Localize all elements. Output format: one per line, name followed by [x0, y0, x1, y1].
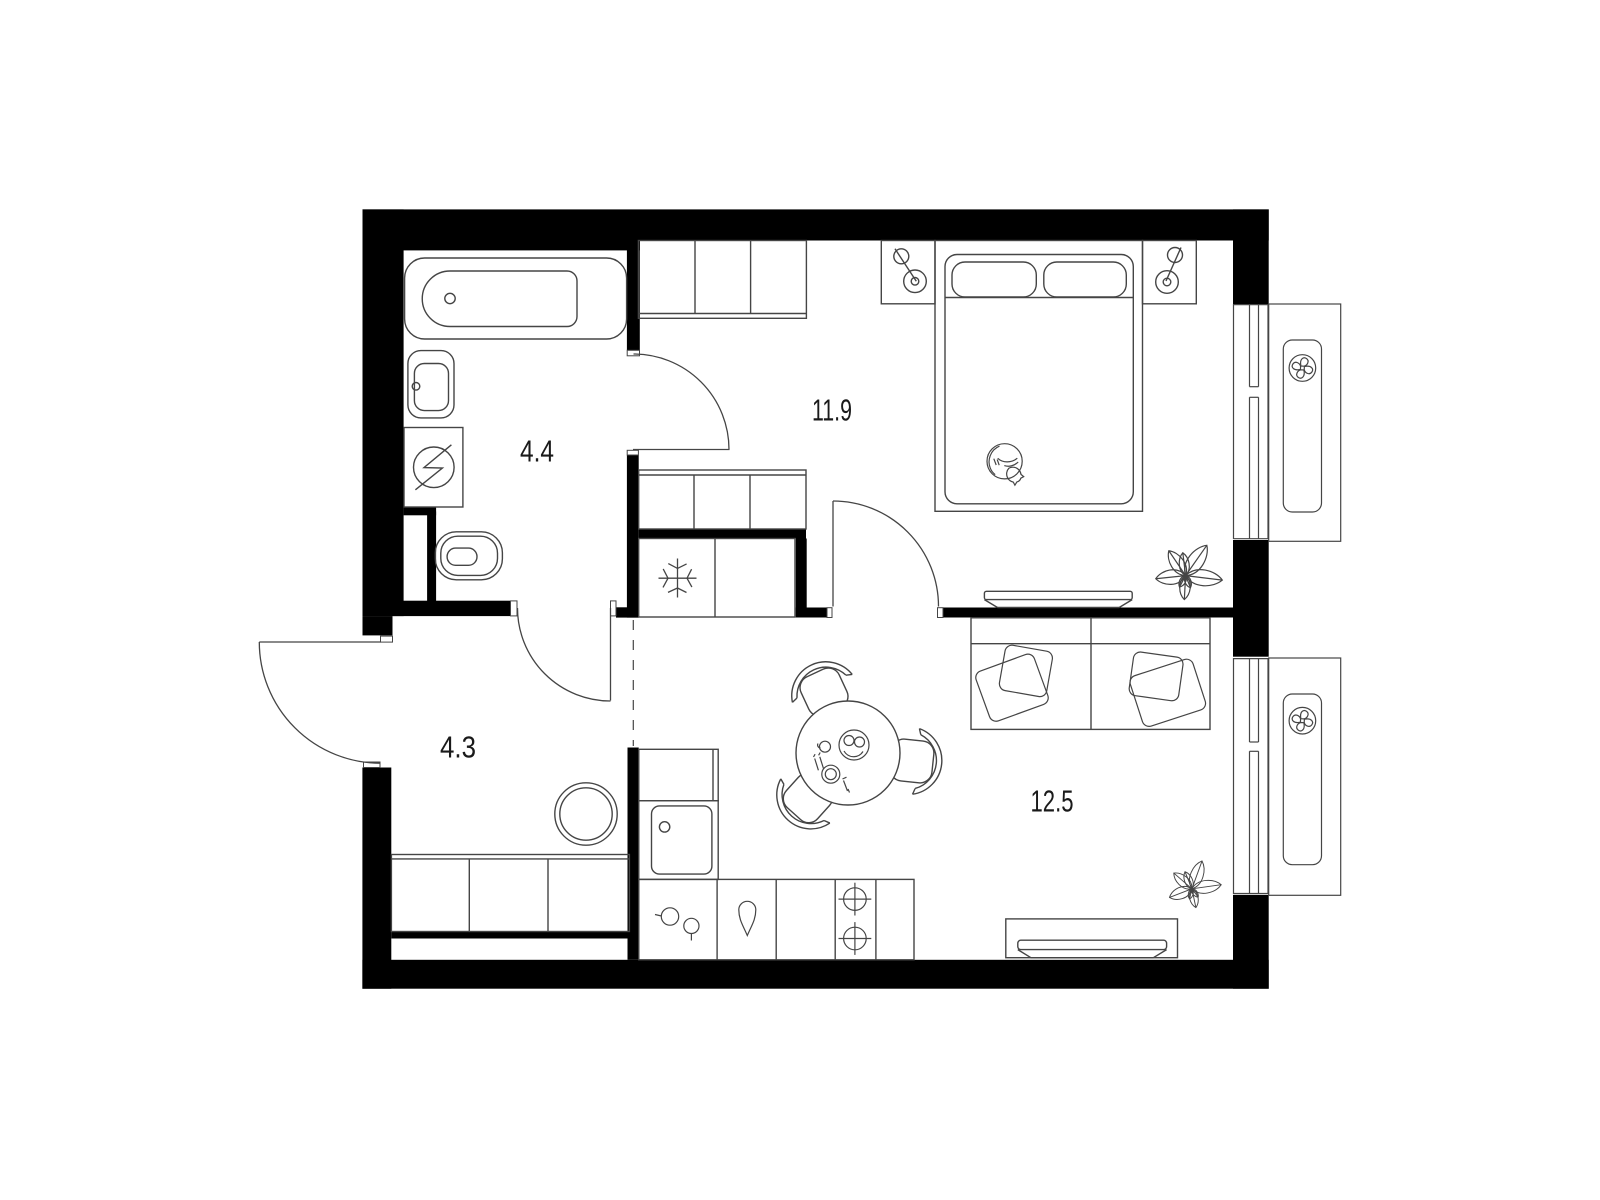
svg-text:4.3: 4.3: [440, 729, 476, 764]
svg-text:4.4: 4.4: [520, 433, 554, 468]
svg-text:11.9: 11.9: [812, 392, 852, 427]
svg-text:12.5: 12.5: [1031, 783, 1074, 818]
